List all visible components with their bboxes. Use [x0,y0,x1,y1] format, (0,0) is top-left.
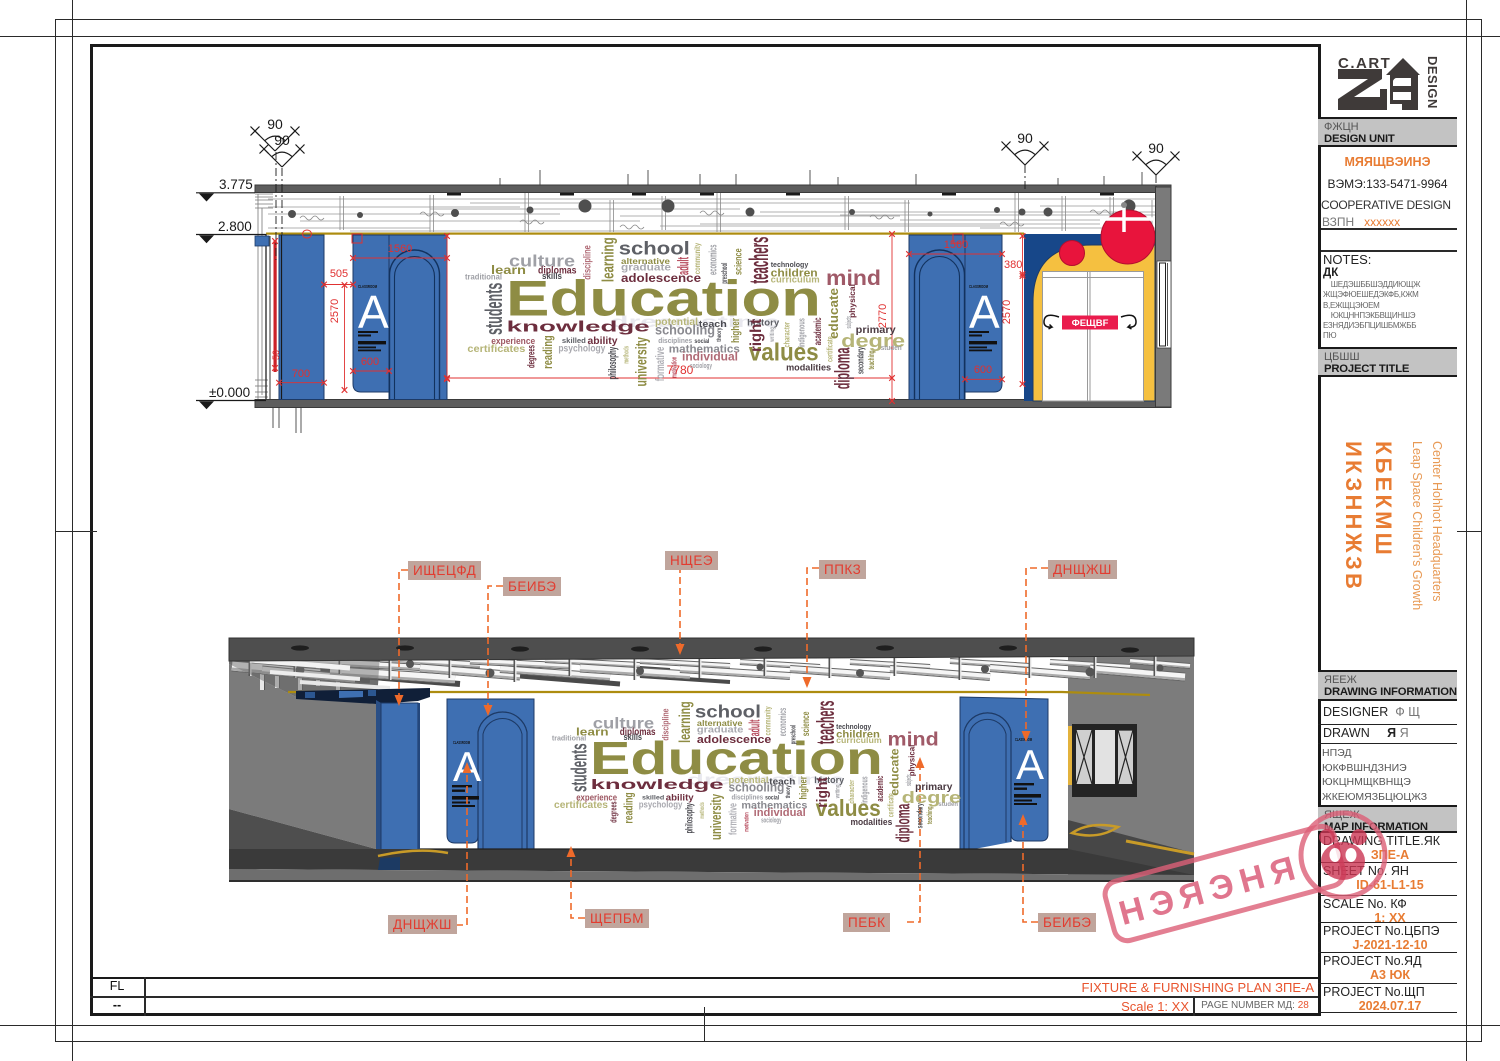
svg-text:psychology: psychology [639,799,683,809]
svg-text:academic: academic [875,776,885,802]
svg-text:schooling: schooling [729,780,785,795]
svg-text:curriculum: curriculum [836,735,882,745]
svg-text:modalities: modalities [850,817,892,827]
svg-text:motivation: motivation [743,812,750,832]
svg-text:methods: methods [699,802,706,819]
svg-text:higher: higher [799,776,810,799]
svg-text:learning: learning [677,701,694,743]
svg-text:diploma: diploma [893,804,915,843]
svg-text:sociology: sociology [761,818,782,825]
svg-text:discipline: discipline [661,709,671,741]
svg-text:physical: physical [908,745,917,777]
svg-text:formative: formative [728,803,740,835]
svg-text:teachers: teachers [812,701,840,745]
svg-text:graduate: graduate [697,724,744,734]
svg-text:character: character [847,780,856,804]
svg-text:studen: studen [938,801,958,808]
svg-text:community: community [763,706,772,736]
svg-text:educate: educate [888,748,902,796]
svg-text:students: students [566,743,591,792]
svg-text:philosophy: philosophy [684,803,695,834]
svg-text:skills: skills [623,732,642,742]
svg-text:indigenous: indigenous [860,776,870,803]
svg-text:science: science [801,711,812,736]
svg-text:degrees: degrees [609,801,619,822]
svg-text:knowledge: knowledge [591,776,724,792]
svg-text:theory: theory [786,785,792,798]
svg-text:economics: economics [778,708,789,737]
svg-text:right: right [815,777,831,808]
svg-text:adult: adult [748,719,764,736]
svg-text:traditional: traditional [552,733,586,742]
svg-text:subjects: subjects [906,774,913,786]
svg-text:university: university [709,794,725,840]
svg-text:preschool: preschool [789,725,798,745]
svg-text:certificates: certificates [554,800,609,811]
svg-text:reading: reading [622,792,636,823]
svg-text:teaching: teaching [925,806,934,824]
svg-text:writing: writing [835,784,841,799]
svg-text:secondary: secondary [915,803,925,828]
